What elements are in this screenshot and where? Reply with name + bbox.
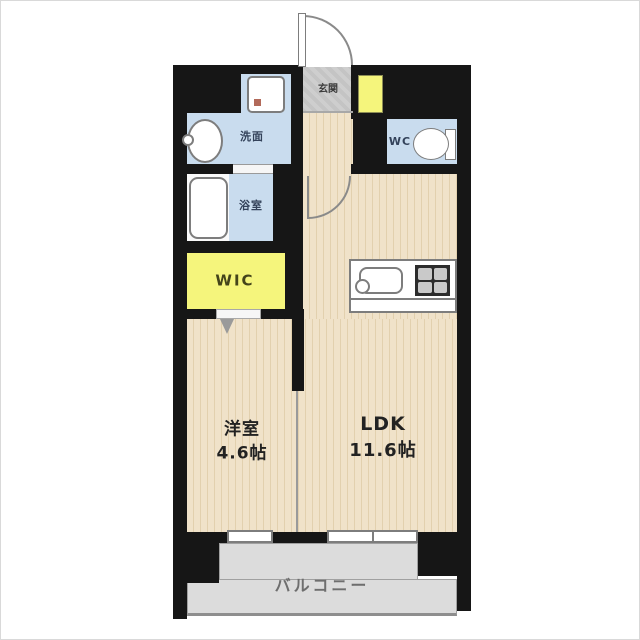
wall bbox=[353, 113, 387, 164]
wall bbox=[273, 174, 303, 251]
wall bbox=[291, 65, 303, 174]
hallway-floor bbox=[303, 113, 353, 176]
bathroom-label: 浴室 bbox=[239, 199, 263, 213]
room-partition-line bbox=[296, 391, 298, 532]
ldk-label: LDK bbox=[360, 413, 406, 437]
western-room-label: 洋室 bbox=[224, 419, 260, 440]
floorplan-image: 玄関 洗面 WC 浴室 WIC 洋室 4.6帖 LDK 11.6帖 バルコニー bbox=[0, 0, 640, 640]
stove-icon bbox=[415, 265, 450, 296]
entrance-door-swing-icon bbox=[303, 15, 353, 65]
wall bbox=[273, 164, 303, 174]
western-room-size: 4.6帖 bbox=[216, 443, 267, 464]
wall bbox=[173, 65, 241, 113]
sink-faucet-icon bbox=[355, 279, 370, 294]
counter-edge-line bbox=[351, 298, 455, 300]
toilet-bowl-icon bbox=[413, 128, 449, 160]
bathtub-icon bbox=[189, 177, 228, 239]
washer-drain-icon bbox=[254, 99, 261, 106]
closet-door-opening bbox=[216, 309, 261, 319]
basin-faucet-icon bbox=[182, 134, 194, 146]
entrance-door-leaf bbox=[298, 13, 306, 67]
entrance-step-line bbox=[303, 111, 353, 113]
wall bbox=[173, 111, 187, 619]
window-western-room bbox=[227, 530, 273, 543]
wall bbox=[292, 309, 304, 391]
walk-in-closet-label: WIC bbox=[215, 272, 254, 291]
shoe-cabinet bbox=[358, 75, 383, 113]
kitchen-counter bbox=[349, 259, 457, 313]
wall bbox=[418, 532, 457, 576]
closet-door-mark-icon bbox=[220, 319, 234, 334]
bathroom-sliding-door bbox=[233, 164, 273, 174]
wall bbox=[187, 309, 216, 319]
entrance-label: 玄関 bbox=[318, 84, 338, 97]
window-mullion bbox=[372, 532, 374, 541]
balcony-area bbox=[219, 543, 418, 580]
window-ldk bbox=[327, 530, 418, 543]
balcony-label: バルコニー bbox=[275, 576, 370, 596]
ldk-size: 11.6帖 bbox=[349, 440, 416, 463]
washroom-label: 洗面 bbox=[240, 130, 264, 144]
wall bbox=[187, 164, 233, 174]
wall bbox=[351, 164, 457, 174]
wall bbox=[187, 241, 303, 253]
washing-machine-pan-icon bbox=[247, 76, 285, 113]
wall bbox=[187, 532, 219, 583]
wall bbox=[457, 117, 471, 611]
toilet-label: WC bbox=[389, 135, 411, 149]
ldk-door-leaf bbox=[307, 176, 309, 219]
